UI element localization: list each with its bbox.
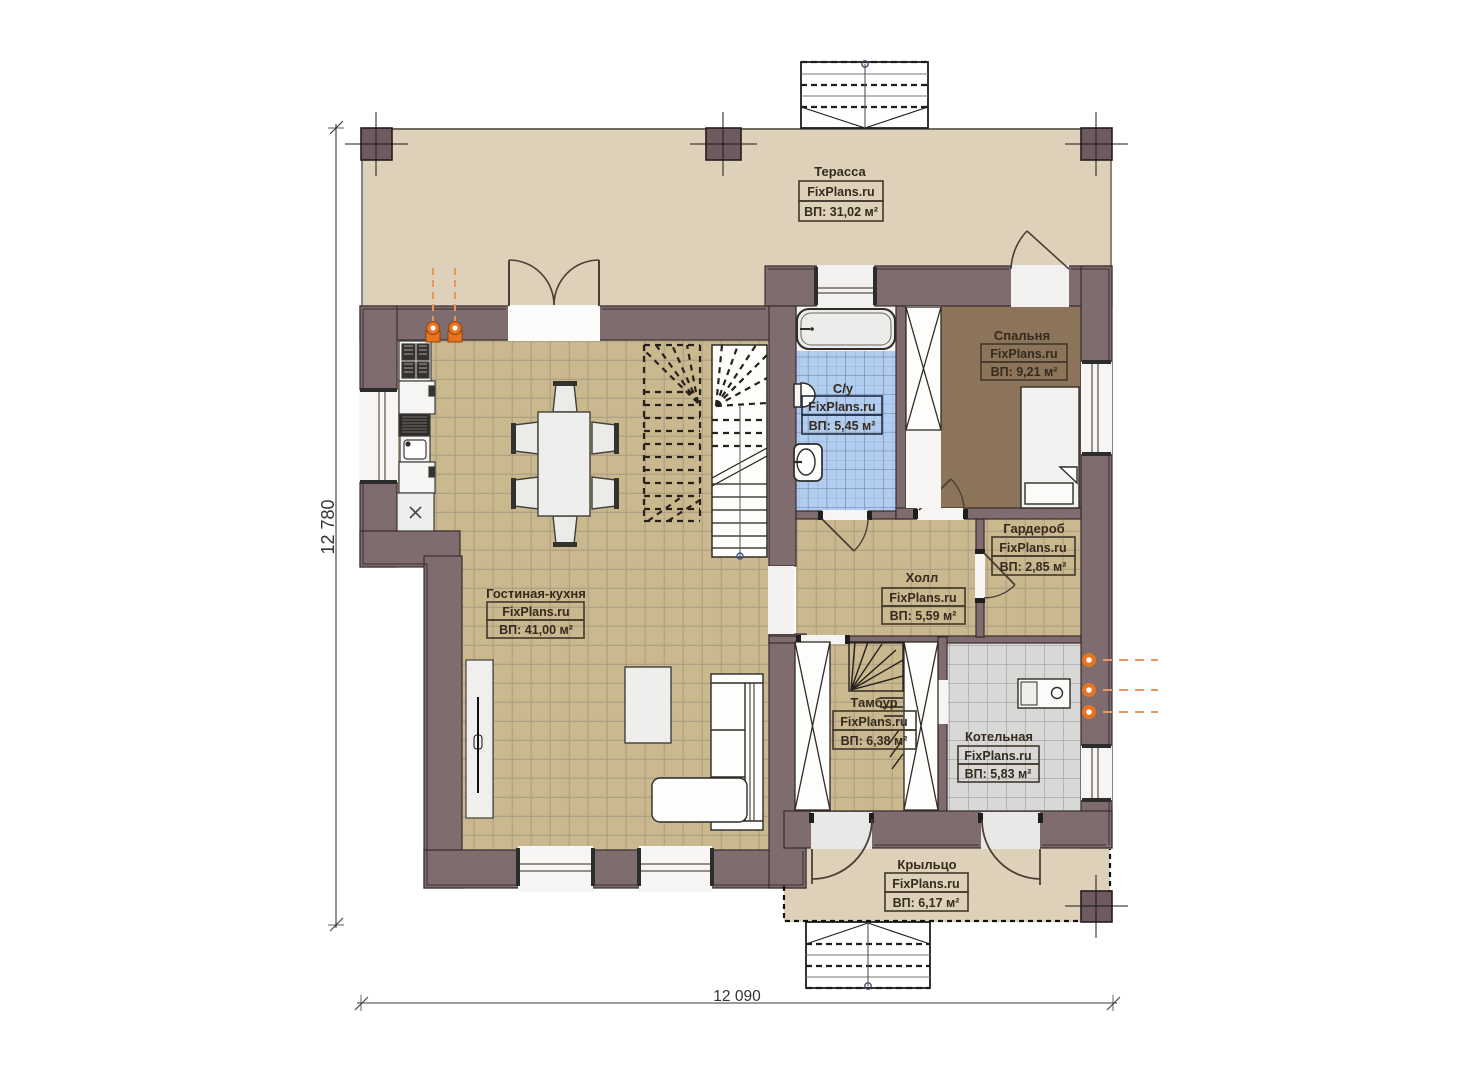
svg-text:FixPlans.ru: FixPlans.ru [889, 591, 956, 605]
svg-text:ВП: 6,17 м²: ВП: 6,17 м² [893, 896, 960, 910]
svg-text:FixPlans.ru: FixPlans.ru [807, 185, 874, 199]
svg-text:FixPlans.ru: FixPlans.ru [502, 605, 569, 619]
svg-text:FixPlans.ru: FixPlans.ru [990, 347, 1057, 361]
svg-text:ВП: 5,45 м²: ВП: 5,45 м² [809, 419, 876, 433]
svg-text:ВП: 5,59 м²: ВП: 5,59 м² [890, 609, 957, 623]
svg-text:ВП: 9,21 м²: ВП: 9,21 м² [991, 365, 1058, 379]
svg-text:ВП: 2,85 м²: ВП: 2,85 м² [1000, 560, 1067, 574]
svg-text:FixPlans.ru: FixPlans.ru [964, 749, 1031, 763]
svg-text:ВП: 41,00 м²: ВП: 41,00 м² [499, 623, 573, 637]
svg-text:Терасса: Терасса [814, 164, 866, 179]
svg-text:С/у: С/у [833, 381, 854, 396]
svg-text:12 780: 12 780 [318, 499, 338, 554]
svg-text:Гардероб: Гардероб [1003, 521, 1064, 536]
svg-text:FixPlans.ru: FixPlans.ru [808, 400, 875, 414]
svg-text:ВП: 31,02 м²: ВП: 31,02 м² [804, 205, 878, 219]
svg-text:Котельная: Котельная [965, 729, 1033, 744]
svg-text:Спальня: Спальня [994, 328, 1050, 343]
svg-text:ВП: 6,38 м²: ВП: 6,38 м² [841, 734, 908, 748]
svg-text:ВП: 5,83 м²: ВП: 5,83 м² [965, 767, 1032, 781]
svg-text:FixPlans.ru: FixPlans.ru [892, 877, 959, 891]
svg-text:Холл: Холл [906, 570, 939, 585]
svg-text:12 090: 12 090 [713, 988, 761, 1005]
svg-text:Тамбур: Тамбур [850, 695, 897, 710]
svg-text:Крыльцо: Крыльцо [897, 857, 956, 872]
svg-text:FixPlans.ru: FixPlans.ru [999, 541, 1066, 555]
svg-text:Гостиная-кухня: Гостиная-кухня [486, 586, 586, 601]
svg-text:FixPlans.ru: FixPlans.ru [840, 715, 907, 729]
